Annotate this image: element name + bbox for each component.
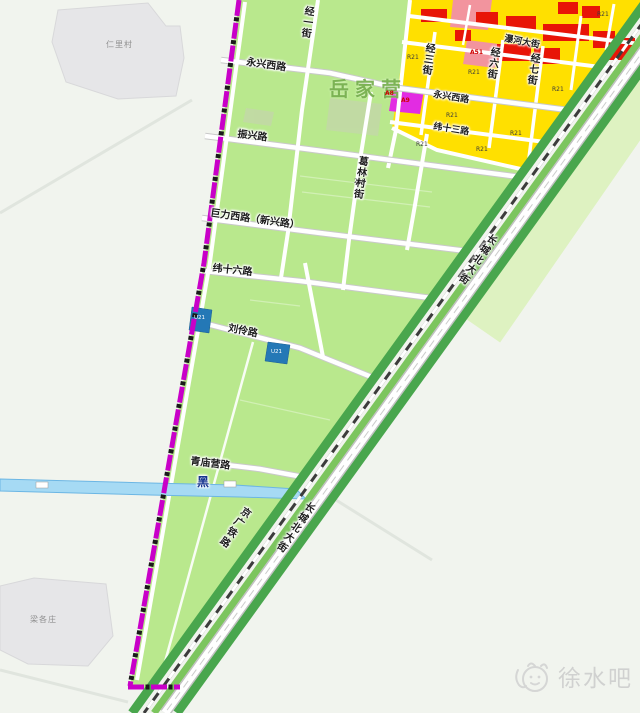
road-label-changcheng-north-2: 长城北大街 [273,499,316,554]
zone-label-r21-6: R21 [552,87,564,93]
road-label-jing3-street: 经三街 [419,42,433,76]
village-label-lianggezhuang: 梁各庄 [30,616,57,624]
road-label-jing7-street: 经七街 [524,52,538,86]
area-label-yuejiaying: 岳家营 [329,79,407,99]
railway-label-jingguang: 京广铁路 [215,504,251,549]
zone-label-u21-2: U21 [271,350,282,356]
zone-label-u21-1: U21 [194,316,205,322]
road-label-wei16: 纬十六路 [212,264,253,278]
road-label-wei13: 纬十三路 [433,123,470,138]
village-label-renlicun: 仁里村 [106,41,133,49]
road-label-jing1-street: 经一街 [298,5,312,39]
zone-label-a9: A9 [401,98,410,104]
watermark-text: 徐水吧 [558,659,633,693]
road-label-yongxing-west-2: 永兴西路 [433,91,470,106]
zone-label-r21-3: R21 [446,113,458,119]
road-label-changcheng-north-1: 长城北大街 [455,231,498,286]
zone-label-r21-4: R21 [476,147,488,153]
watermark: 徐水吧 [508,656,633,696]
zone-label-r21-5: R21 [416,142,428,148]
road-label-puhe-avenue: 瀑河大街 [503,35,540,51]
road-label-jing6-street: 经六街 [484,46,498,80]
planning-map-screenshot: 仁里村梁各庄岳家营永兴西路经一街经三街经六街经七街瀑河大街永兴西路纬十三路振兴路… [0,0,640,713]
road-label-zhenxing: 振兴路 [237,130,268,144]
zone-label-a8: A8 [385,91,394,97]
zone-label-r21-8: R21 [510,131,522,137]
zone-label-216: 216 [354,179,365,185]
road-label-qingmiaoying: 青庙营路 [190,457,231,472]
zone-label-r21-1: R21 [407,55,419,61]
zone-label-r21-7: R21 [597,12,609,18]
watermark-logo-icon [508,656,554,696]
river-label-hei: 黑 [197,476,209,488]
road-label-yongxing-west-1: 永兴西路 [246,58,287,73]
zone-label-r21-2: R21 [468,70,480,76]
label-layer: 仁里村梁各庄岳家营永兴西路经一街经三街经六街经七街瀑河大街永兴西路纬十三路振兴路… [0,0,640,713]
road-label-liuling: 刘伶路 [227,324,258,340]
zone-label-a51: A51 [470,50,483,56]
road-label-juli-west: 巨力西路（新兴路） [210,209,301,231]
